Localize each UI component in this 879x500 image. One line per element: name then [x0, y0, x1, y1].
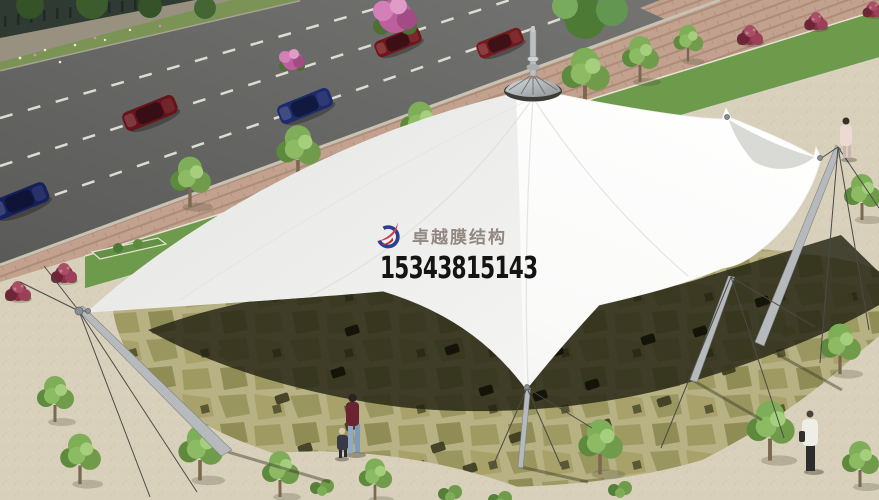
finial-collar: [527, 64, 540, 70]
planter-plants: [113, 243, 123, 253]
render-canvas: 卓越膜结构 15343815143: [0, 0, 879, 500]
finial-tip: [531, 26, 535, 32]
scene-svg: [0, 0, 879, 500]
finial-collar: [528, 56, 539, 62]
planter-plants: [133, 239, 143, 249]
